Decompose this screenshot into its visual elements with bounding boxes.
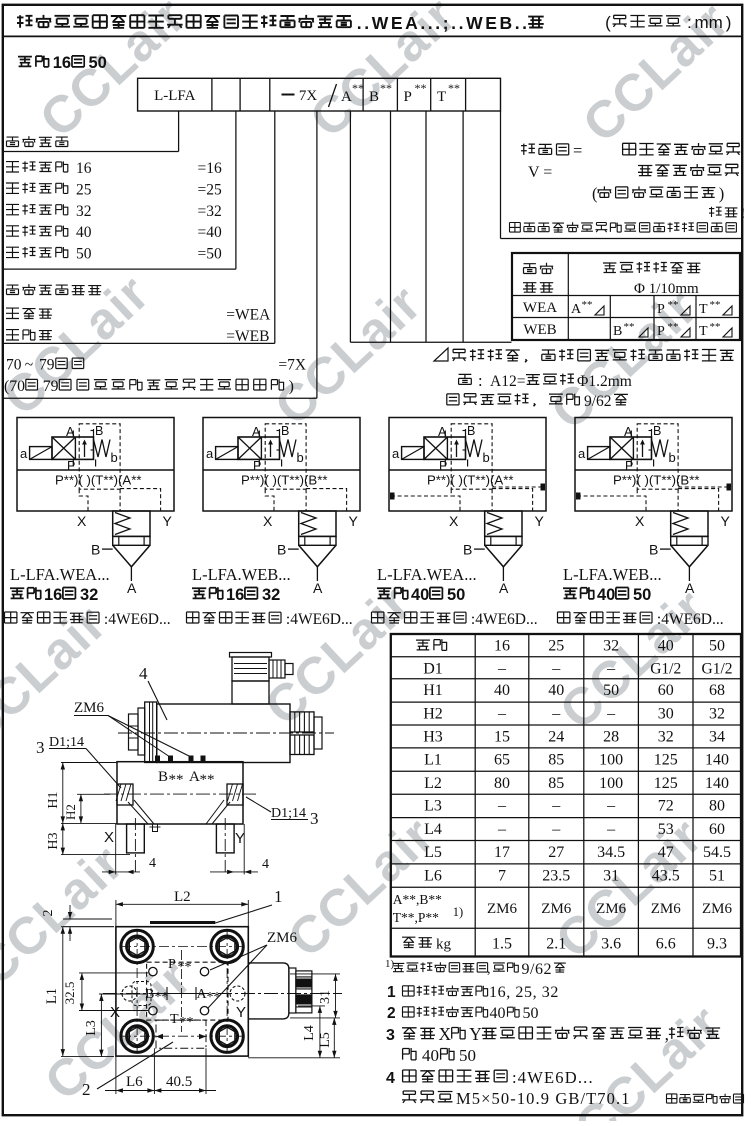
svg-text:=WEB: =WEB	[226, 328, 269, 345]
svg-text:D1;14: D1;14	[271, 806, 306, 821]
svg-text:140: 140	[705, 751, 729, 768]
svg-text:68: 68	[709, 682, 725, 699]
svg-text:Φ1.2mm: Φ1.2mm	[577, 373, 632, 390]
svg-text:**: **	[668, 321, 679, 333]
svg-text:100: 100	[599, 775, 623, 792]
svg-text:80: 80	[494, 775, 510, 792]
svg-text:**: **	[180, 1015, 194, 1030]
svg-text:24: 24	[548, 729, 564, 746]
svg-text:15: 15	[494, 729, 510, 746]
svg-text:ZM6: ZM6	[541, 901, 572, 917]
svg-text:B: B	[467, 424, 475, 438]
svg-text:43.5: 43.5	[652, 867, 680, 884]
svg-text:9/62: 9/62	[584, 393, 612, 410]
svg-text:A: A	[189, 769, 200, 785]
svg-text:16: 16	[53, 54, 71, 72]
svg-text:1): 1)	[453, 905, 463, 919]
svg-text:**: **	[448, 81, 460, 95]
svg-text:X: X	[77, 513, 87, 529]
svg-text:**: **	[380, 81, 392, 95]
svg-text:1.5: 1.5	[492, 936, 512, 953]
svg-text:27: 27	[548, 844, 564, 861]
svg-text:**: **	[415, 81, 427, 95]
svg-text:A**,B**: A**,B**	[393, 892, 442, 907]
svg-text:40: 40	[76, 224, 92, 241]
svg-text:–: –	[497, 798, 507, 815]
svg-text:G1/2: G1/2	[650, 660, 681, 677]
svg-text:2.1: 2.1	[546, 936, 566, 953]
svg-text:X: X	[635, 513, 645, 529]
svg-text:60: 60	[658, 682, 674, 699]
svg-text:A12=: A12=	[490, 373, 525, 390]
svg-text:16: 16	[226, 586, 244, 604]
svg-text:P: P	[657, 324, 665, 339]
svg-text:A: A	[66, 425, 75, 439]
svg-text:G1/2: G1/2	[702, 660, 733, 677]
svg-text:31: 31	[318, 990, 333, 1004]
svg-text:ZM6: ZM6	[651, 901, 682, 917]
svg-text::4WE6D...: :4WE6D...	[471, 611, 538, 628]
svg-text:**: **	[668, 299, 679, 311]
svg-text:=WEA: =WEA	[226, 307, 271, 324]
svg-text:2: 2	[41, 910, 56, 917]
svg-text:**: **	[155, 990, 169, 1005]
svg-text:**: **	[200, 772, 215, 788]
svg-text:B: B	[158, 769, 168, 785]
svg-text:B: B	[613, 324, 622, 339]
svg-text:50: 50	[633, 586, 651, 604]
svg-text:–: –	[606, 706, 616, 723]
svg-text:L6: L6	[126, 1074, 143, 1090]
svg-text:WEB: WEB	[523, 322, 556, 338]
svg-text:50: 50	[447, 586, 465, 604]
svg-text:L-LFA.WEA...: L-LFA.WEA...	[377, 565, 477, 584]
svg-text:P: P	[657, 302, 665, 317]
svg-text:A: A	[571, 302, 582, 317]
svg-text:a: a	[392, 446, 400, 461]
svg-text:100: 100	[599, 751, 623, 768]
svg-text:–: –	[606, 798, 616, 815]
svg-text:H3: H3	[423, 729, 443, 746]
svg-text:T: T	[699, 302, 708, 317]
svg-text:L-LFA.WEB...: L-LFA.WEB...	[192, 565, 291, 584]
svg-text:Y: Y	[349, 513, 359, 529]
svg-text:B: B	[653, 424, 661, 438]
svg-text:ZM6: ZM6	[267, 930, 298, 946]
svg-text:Y: Y	[721, 513, 731, 529]
svg-text:7: 7	[498, 867, 506, 884]
svg-text:V =: V =	[528, 164, 552, 181]
svg-text::: :	[478, 371, 483, 390]
svg-text::4WE6D...: :4WE6D...	[286, 611, 353, 628]
svg-text:L2: L2	[174, 889, 191, 905]
svg-text:L4: L4	[302, 1025, 317, 1041]
svg-text:–: –	[497, 706, 507, 723]
svg-text:B: B	[145, 987, 154, 1002]
svg-text:54.5: 54.5	[703, 844, 731, 861]
svg-text:X: X	[439, 1024, 452, 1044]
svg-text:T: T	[170, 1012, 179, 1027]
svg-text:b: b	[669, 450, 676, 465]
svg-text:,: ,	[487, 962, 491, 977]
svg-text:–: –	[497, 821, 507, 838]
svg-text:16, 25, 32: 16, 25, 32	[489, 984, 559, 1001]
svg-text:L6: L6	[424, 867, 442, 884]
svg-text:–: –	[606, 660, 616, 677]
svg-text:H3: H3	[46, 832, 61, 849]
svg-text:B: B	[95, 424, 103, 438]
svg-text:3.6: 3.6	[601, 936, 621, 953]
svg-text:6.6: 6.6	[656, 936, 676, 953]
svg-text:L-LFA: L-LFA	[154, 88, 196, 104]
svg-text:125: 125	[654, 775, 678, 792]
svg-text:T: T	[437, 89, 446, 105]
svg-text:P**)( )(T**)(B**: P**)( )(T**)(B**	[241, 473, 327, 488]
svg-text:P: P	[439, 459, 447, 473]
svg-text:79: 79	[39, 357, 55, 374]
svg-text:40: 40	[658, 638, 674, 655]
svg-text:40: 40	[490, 1005, 506, 1022]
svg-text:79: 79	[43, 378, 59, 395]
svg-text:~: ~	[25, 357, 33, 374]
svg-text:=25: =25	[198, 181, 222, 198]
svg-text:47: 47	[658, 844, 674, 861]
svg-text:–: –	[606, 821, 616, 838]
svg-text:A: A	[127, 580, 137, 596]
svg-text:H2: H2	[423, 706, 443, 723]
svg-text:mm: mm	[695, 13, 723, 32]
svg-text:Y: Y	[236, 1004, 246, 1021]
svg-text:L3: L3	[84, 1020, 99, 1036]
svg-text:65: 65	[494, 751, 510, 768]
svg-text:4: 4	[149, 856, 156, 871]
svg-text:50: 50	[709, 638, 725, 655]
svg-text:50: 50	[459, 1046, 476, 1065]
svg-text:4: 4	[262, 857, 269, 872]
svg-text:53: 53	[658, 821, 674, 838]
svg-text:(: (	[605, 13, 611, 32]
svg-text:40: 40	[597, 586, 615, 604]
svg-text::4WE6D...: :4WE6D...	[657, 611, 724, 628]
svg-text:1): 1)	[385, 958, 395, 970]
svg-text:50: 50	[89, 54, 107, 72]
svg-text:!: !	[740, 222, 745, 237]
svg-text:9.3: 9.3	[707, 936, 727, 953]
svg-text:P: P	[253, 459, 261, 473]
svg-text:32.5: 32.5	[62, 982, 77, 1005]
svg-text:L2: L2	[424, 775, 442, 792]
svg-text::: :	[687, 13, 692, 32]
svg-text:H1: H1	[423, 682, 443, 699]
svg-text:16: 16	[76, 160, 92, 177]
svg-text:D1;14: D1;14	[49, 735, 84, 750]
svg-text:WEA: WEA	[523, 300, 557, 316]
svg-text:ZM6: ZM6	[702, 901, 733, 917]
svg-text:7X: 7X	[299, 88, 318, 104]
svg-text:51: 51	[709, 867, 725, 884]
svg-text:A: A	[685, 580, 695, 596]
svg-text:X: X	[110, 1004, 120, 1021]
svg-text:**: **	[624, 321, 635, 333]
svg-text:B: B	[277, 542, 286, 558]
svg-text:A: A	[313, 580, 323, 596]
svg-text:A: A	[438, 425, 447, 439]
svg-text:L-LFA.WEA...: L-LFA.WEA...	[10, 565, 110, 584]
svg-text:): )	[726, 13, 732, 32]
svg-text:L-LFA.WEB...: L-LFA.WEB...	[563, 565, 662, 584]
svg-text:=: =	[573, 141, 582, 160]
svg-text:17: 17	[494, 844, 510, 861]
svg-text:L5: L5	[318, 1032, 333, 1048]
svg-text:40.5: 40.5	[166, 1074, 192, 1090]
svg-text:B: B	[463, 542, 472, 558]
svg-text:(: (	[592, 184, 598, 203]
svg-text:34.5: 34.5	[597, 844, 625, 861]
svg-text:B: B	[649, 542, 658, 558]
svg-text:L4: L4	[424, 821, 442, 838]
svg-text:a: a	[206, 446, 214, 461]
svg-text:23.5: 23.5	[542, 867, 570, 884]
svg-text:125: 125	[654, 751, 678, 768]
svg-text:A: A	[252, 425, 261, 439]
svg-text:,: ,	[665, 1024, 669, 1044]
svg-text:–: –	[551, 798, 561, 815]
svg-text:(70: (70	[4, 378, 25, 395]
svg-text:a: a	[578, 446, 586, 461]
svg-text:**: **	[178, 960, 192, 975]
svg-text:=40: =40	[198, 224, 222, 241]
svg-text:Φ 1/10mm: Φ 1/10mm	[634, 281, 699, 297]
svg-text:Y: Y	[235, 830, 245, 847]
svg-text:B: B	[91, 542, 100, 558]
svg-text:=50: =50	[198, 246, 222, 263]
svg-text:16: 16	[44, 586, 62, 604]
svg-text:M5×50-10.9 GB/T70.1: M5×50-10.9 GB/T70.1	[456, 1089, 631, 1108]
svg-text:34: 34	[709, 729, 725, 746]
svg-text:L5: L5	[424, 844, 442, 861]
svg-text:70: 70	[6, 357, 22, 374]
svg-text:X: X	[449, 513, 459, 529]
svg-text:140: 140	[705, 775, 729, 792]
svg-text:P: P	[404, 89, 412, 105]
svg-text:40: 40	[494, 682, 510, 699]
svg-text:ZM6: ZM6	[487, 901, 518, 917]
svg-text:60: 60	[709, 821, 725, 838]
svg-text:31: 31	[603, 867, 619, 884]
svg-text:H1: H1	[46, 791, 61, 808]
svg-text:9/62: 9/62	[522, 961, 552, 978]
svg-text:3: 3	[310, 809, 319, 828]
svg-text:85: 85	[548, 751, 564, 768]
svg-text:X: X	[263, 513, 273, 529]
svg-text:50: 50	[603, 682, 619, 699]
svg-text:32: 32	[709, 706, 725, 723]
svg-text:P**)( )(T**)(A**: P**)( )(T**)(A**	[427, 473, 513, 488]
svg-text:–: –	[551, 660, 561, 677]
svg-text:ZM6: ZM6	[74, 700, 105, 716]
svg-text:D1: D1	[423, 660, 443, 677]
svg-text:Y: Y	[163, 513, 173, 529]
svg-text:b: b	[297, 450, 304, 465]
svg-text:H2: H2	[63, 804, 78, 820]
svg-text:32: 32	[603, 638, 619, 655]
svg-text:–: –	[497, 660, 507, 677]
svg-text:72: 72	[658, 798, 674, 815]
svg-text:kg: kg	[436, 937, 452, 953]
svg-text:32: 32	[262, 586, 280, 604]
svg-text:**: **	[710, 299, 721, 311]
svg-text:=16: =16	[198, 160, 222, 177]
svg-text:40: 40	[548, 682, 564, 699]
svg-text:3: 3	[36, 738, 45, 757]
svg-text:Y: Y	[469, 1024, 482, 1044]
svg-text:T: T	[699, 324, 708, 339]
svg-text:P: P	[625, 459, 633, 473]
svg-text:3: 3	[386, 1027, 395, 1044]
svg-text:=32: =32	[198, 203, 222, 220]
svg-text:P**)( )(T**)(B**: P**)( )(T**)(B**	[613, 473, 699, 488]
svg-text:P: P	[67, 459, 75, 473]
svg-text:32: 32	[80, 586, 98, 604]
svg-text:T**,P**: T**,P**	[393, 910, 439, 925]
svg-text:a: a	[20, 446, 28, 461]
svg-text:**: **	[582, 299, 593, 311]
svg-text:25: 25	[548, 638, 564, 655]
svg-text:b: b	[111, 450, 118, 465]
svg-text:32: 32	[658, 729, 674, 746]
svg-text:L1: L1	[424, 751, 442, 768]
svg-text:A: A	[624, 425, 633, 439]
svg-text:A: A	[341, 89, 352, 105]
svg-text:2: 2	[82, 1080, 91, 1099]
svg-text:**: **	[169, 772, 184, 788]
svg-text:!: !	[741, 206, 746, 222]
svg-text:..WEA...;..WEB..: ..WEA...;..WEB..	[357, 13, 530, 33]
svg-text:B: B	[369, 89, 379, 105]
svg-text::4WE6D...: :4WE6D...	[104, 611, 171, 628]
svg-text:30: 30	[658, 706, 674, 723]
svg-text::4WE6D...: :4WE6D...	[512, 1068, 594, 1087]
svg-text:25: 25	[76, 181, 92, 198]
svg-text:40: 40	[422, 1046, 439, 1065]
svg-text:–: –	[551, 706, 561, 723]
svg-text:L1: L1	[44, 988, 60, 1004]
svg-text:=7X: =7X	[278, 357, 306, 374]
svg-text:4: 4	[139, 664, 148, 683]
svg-text:**: **	[352, 81, 364, 95]
svg-text:85: 85	[548, 775, 564, 792]
svg-text:): )	[719, 184, 725, 203]
svg-text:80: 80	[709, 798, 725, 815]
svg-text:–: –	[551, 821, 561, 838]
svg-text:P: P	[168, 957, 176, 972]
svg-text:1: 1	[274, 887, 283, 906]
svg-text:): )	[289, 378, 294, 395]
svg-text:B: B	[281, 424, 289, 438]
svg-text:28: 28	[603, 729, 619, 746]
svg-text:40: 40	[411, 586, 429, 604]
svg-text:P**)( )(T**)(A**: P**)( )(T**)(A**	[55, 473, 141, 488]
svg-text:50: 50	[76, 246, 92, 263]
svg-text:32: 32	[76, 203, 92, 220]
svg-text:4: 4	[386, 1070, 395, 1087]
svg-text:**: **	[710, 321, 721, 333]
svg-text:2: 2	[387, 1005, 396, 1022]
svg-text:1: 1	[387, 984, 396, 1001]
svg-text:Y: Y	[535, 513, 545, 529]
svg-text:16: 16	[494, 638, 510, 655]
svg-text:X: X	[104, 829, 114, 846]
svg-text:L3: L3	[424, 798, 442, 815]
svg-text:A: A	[499, 580, 509, 596]
svg-text:50: 50	[523, 1005, 539, 1022]
svg-text:b: b	[483, 450, 490, 465]
svg-text:ZM6: ZM6	[596, 901, 627, 917]
